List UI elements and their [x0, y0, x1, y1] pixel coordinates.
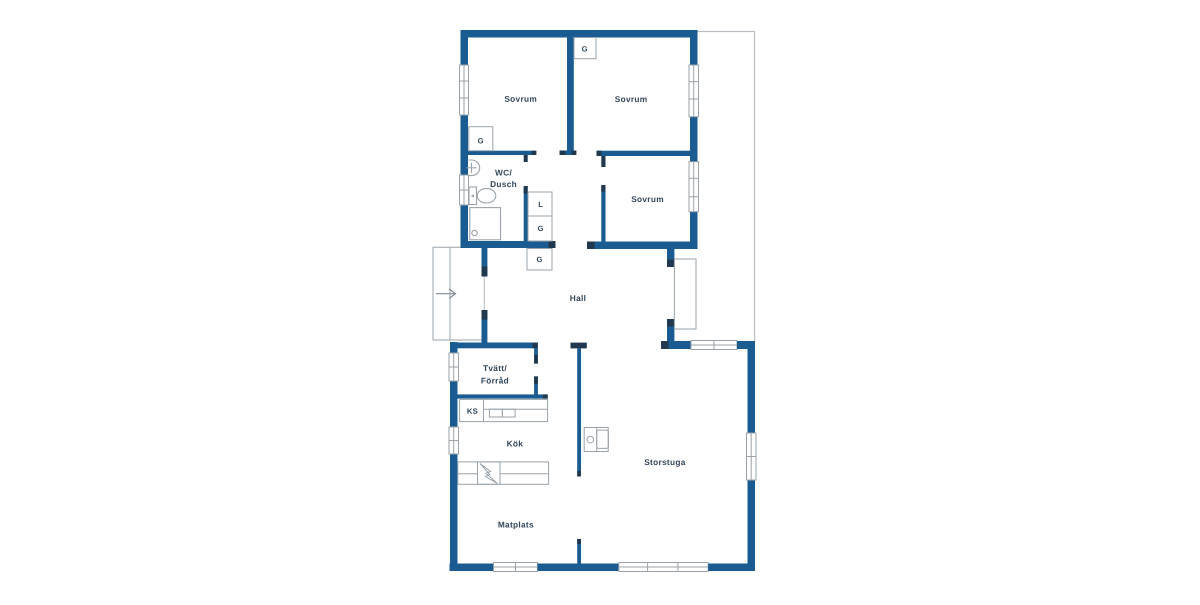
- svg-text:Sovrum: Sovrum: [504, 94, 537, 104]
- svg-text:Storstuga: Storstuga: [644, 457, 686, 467]
- svg-text:L: L: [538, 200, 543, 209]
- svg-text:Sovrum: Sovrum: [615, 94, 648, 104]
- svg-text:Förråd: Förråd: [481, 375, 509, 385]
- svg-text:G: G: [538, 224, 544, 233]
- svg-text:Sovrum: Sovrum: [631, 194, 664, 204]
- svg-text:Tvätt/: Tvätt/: [483, 363, 507, 373]
- svg-text:Matplats: Matplats: [498, 519, 534, 529]
- svg-text:WC/: WC/: [495, 167, 512, 177]
- svg-text:G: G: [478, 136, 484, 145]
- svg-text:Dusch: Dusch: [490, 179, 517, 189]
- svg-text:Hall: Hall: [570, 293, 586, 303]
- svg-text:KS: KS: [467, 407, 478, 416]
- svg-text:Kök: Kök: [507, 438, 524, 448]
- svg-text:G: G: [537, 255, 543, 264]
- svg-text:G: G: [582, 44, 588, 53]
